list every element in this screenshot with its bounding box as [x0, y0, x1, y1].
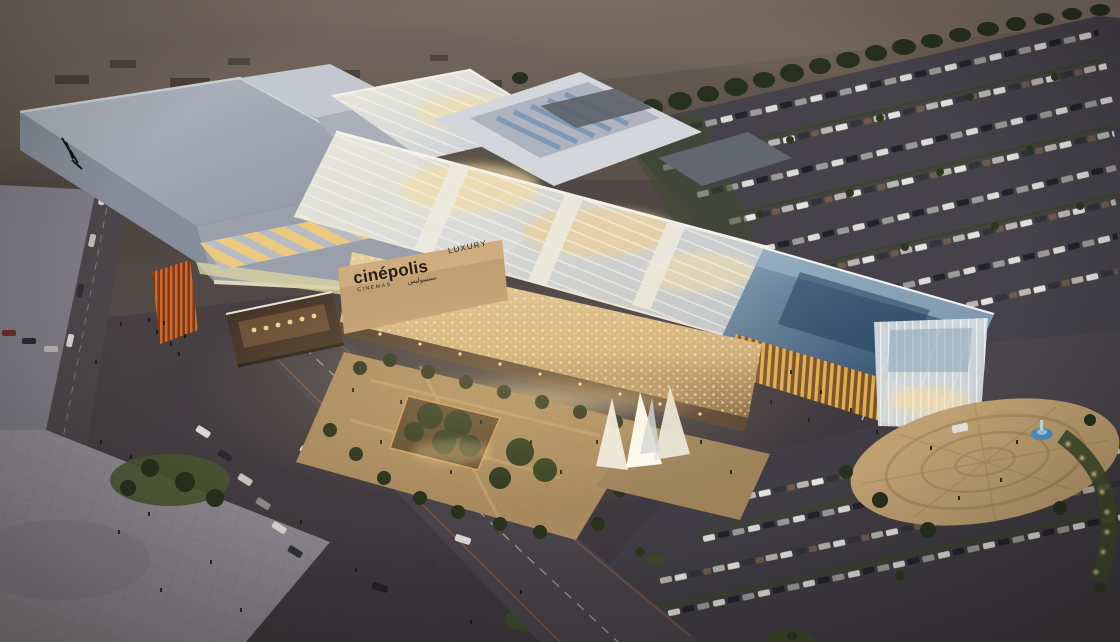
vignette-overlay	[0, 0, 1120, 642]
rendering-scene	[0, 0, 1120, 642]
mall-rendering: cinépolis LUXURY CINEMAS سينيبوليس	[0, 0, 1120, 642]
